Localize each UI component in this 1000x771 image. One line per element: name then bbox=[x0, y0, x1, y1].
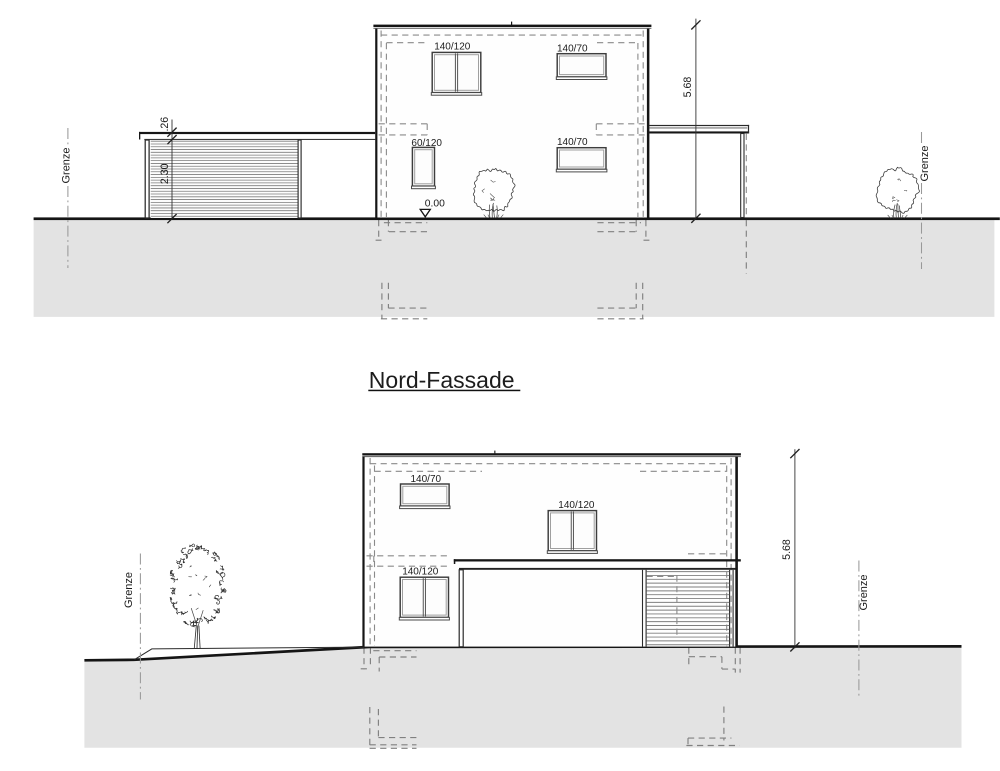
svg-text:Nord-Fassade: Nord-Fassade bbox=[369, 367, 515, 393]
svg-text:140/120: 140/120 bbox=[434, 41, 471, 52]
svg-text:60/120: 60/120 bbox=[411, 138, 442, 149]
svg-text:.26: .26 bbox=[159, 117, 171, 132]
svg-text:0.00: 0.00 bbox=[425, 199, 445, 210]
svg-text:Grenze: Grenze bbox=[858, 574, 870, 610]
svg-text:140/120: 140/120 bbox=[558, 500, 595, 511]
svg-text:5.68: 5.68 bbox=[682, 77, 694, 98]
svg-text:Grenze: Grenze bbox=[919, 145, 931, 181]
svg-text:5.68: 5.68 bbox=[781, 539, 793, 560]
svg-text:Grenze: Grenze bbox=[61, 147, 73, 183]
svg-text:140/70: 140/70 bbox=[557, 137, 588, 148]
svg-text:Grenze: Grenze bbox=[123, 572, 135, 608]
svg-text:140/70: 140/70 bbox=[411, 474, 442, 485]
svg-text:140/120: 140/120 bbox=[402, 567, 439, 578]
svg-text:2.30: 2.30 bbox=[159, 163, 171, 184]
svg-text:140/70: 140/70 bbox=[557, 44, 588, 55]
